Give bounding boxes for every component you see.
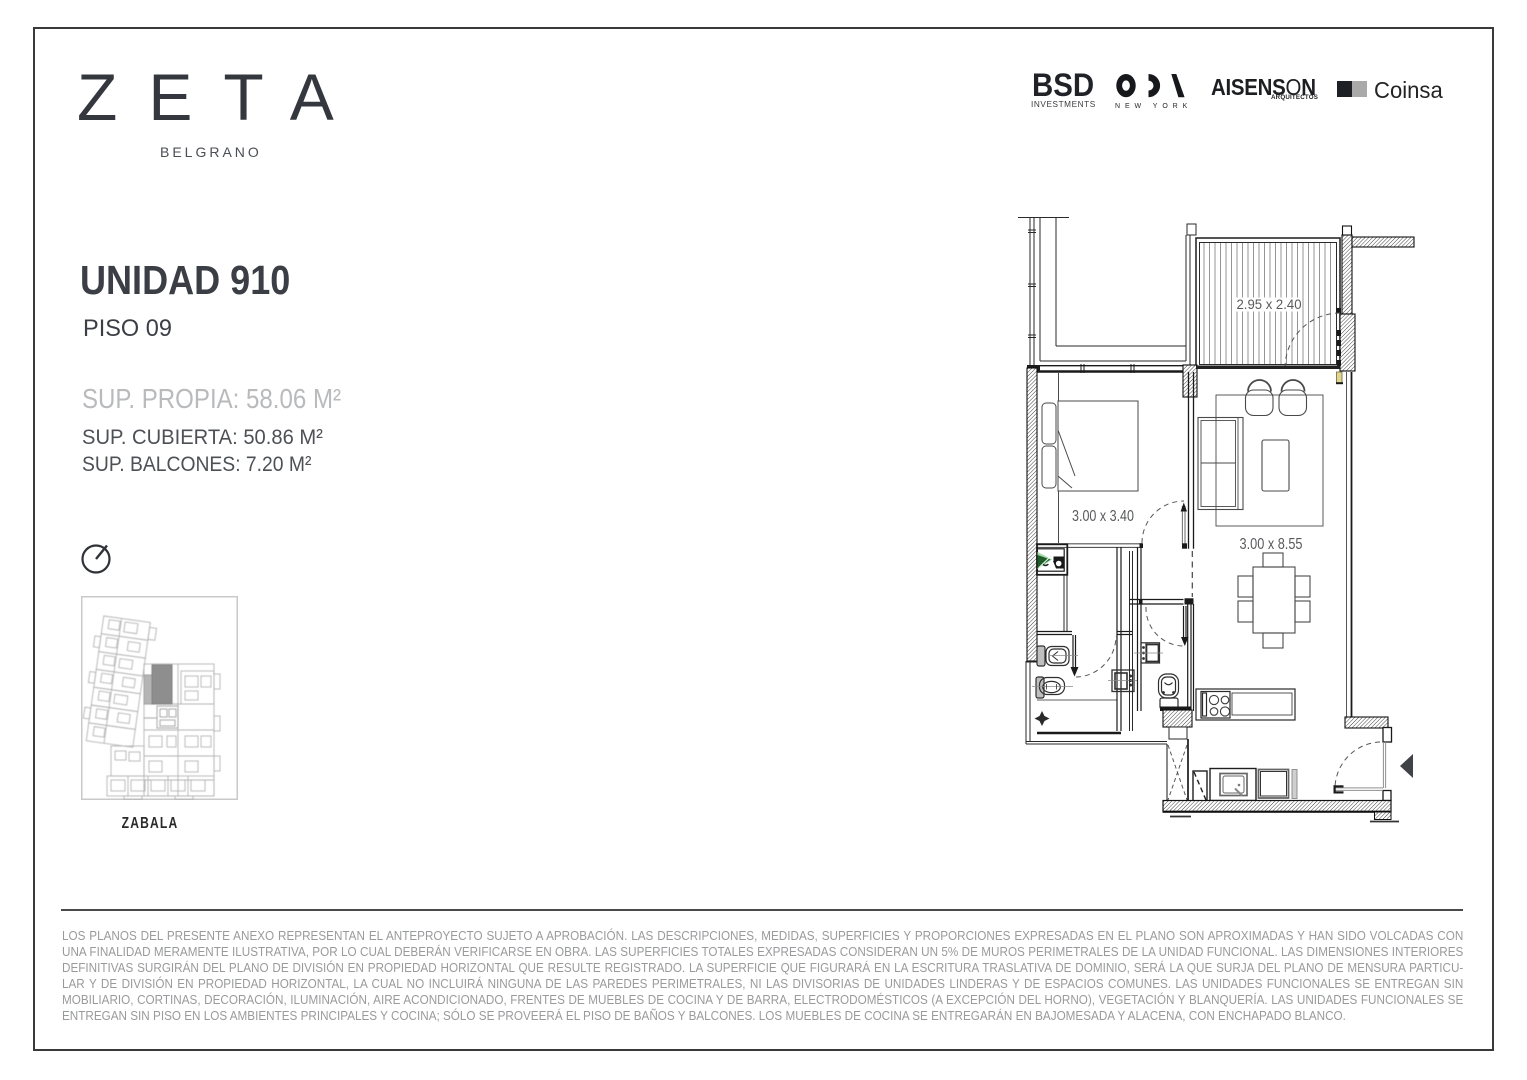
svg-text:NEW YORK: NEW YORK	[1115, 103, 1192, 110]
svg-text:2.95 x 2.40: 2.95 x 2.40	[1237, 296, 1302, 312]
svg-text:3.00 x 3.40: 3.00 x 3.40	[1072, 508, 1134, 525]
svg-text:3.00 x 8.55: 3.00 x 8.55	[1240, 536, 1303, 553]
